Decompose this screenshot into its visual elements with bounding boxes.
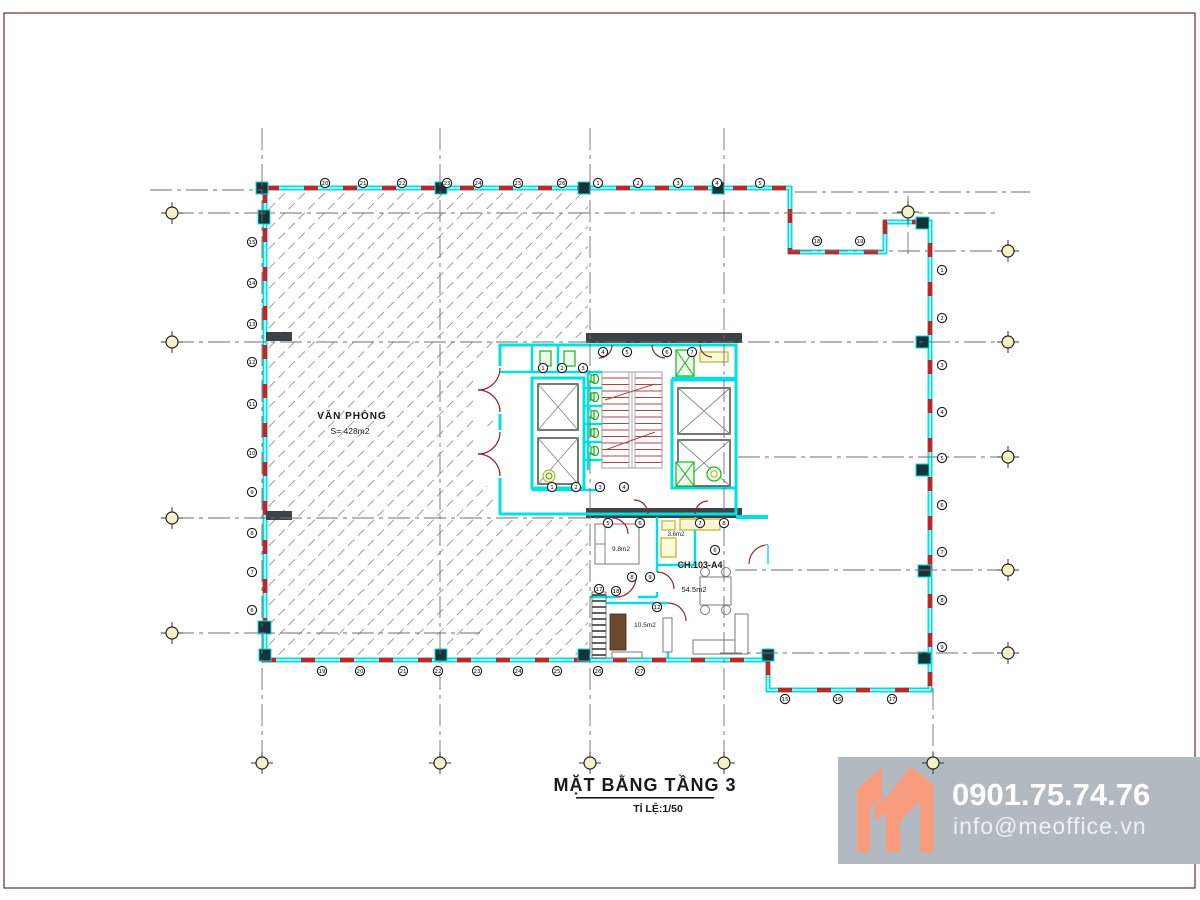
staircase <box>602 372 662 468</box>
svg-text:20: 20 <box>357 669 364 675</box>
svg-text:3: 3 <box>581 366 585 372</box>
washbasin <box>662 521 675 530</box>
svg-text:7: 7 <box>940 550 944 556</box>
opening-marker: 15 <box>247 237 256 246</box>
drawing-title: MẶT BẰNG TẦNG 3 <box>554 774 737 795</box>
opening-marker: 10 <box>247 448 256 457</box>
bedroom1-area-label: 9.8m2 <box>612 546 630 553</box>
floor-plan-drawing: 0901.75.74.76 info@meoffice.vn <box>0 0 1200 900</box>
badge-phone: 0901.75.74.76 <box>952 777 1150 812</box>
opening-marker: 6 <box>937 500 946 509</box>
opening-marker: 3 <box>578 363 587 372</box>
opening-marker: 3 <box>937 360 946 369</box>
svg-text:19: 19 <box>857 239 864 245</box>
svg-text:2: 2 <box>940 316 944 322</box>
svg-text:4: 4 <box>601 350 605 356</box>
svg-text:4: 4 <box>715 181 719 187</box>
opening-marker: 23 <box>472 666 481 675</box>
opening-marker: 7 <box>687 347 696 356</box>
opening-marker: 6 <box>635 518 644 527</box>
opening-marker: 6 <box>710 545 719 554</box>
opening-marker: 1 <box>937 265 946 274</box>
svg-text:1: 1 <box>550 485 554 491</box>
svg-text:18: 18 <box>814 239 821 245</box>
opening-marker: 25 <box>552 666 561 675</box>
sofa <box>693 640 735 654</box>
drawing-scale: TỈ LỆ:1/50 <box>633 802 683 815</box>
sink-fixture <box>564 351 575 366</box>
svg-text:12: 12 <box>654 605 661 611</box>
svg-text:10: 10 <box>249 451 256 457</box>
opening-marker: 7 <box>247 567 256 576</box>
opening-marker: 24 <box>473 178 482 187</box>
svg-text:21: 21 <box>400 669 407 675</box>
svg-text:2: 2 <box>574 485 578 491</box>
opening-marker: 11 <box>247 399 256 408</box>
opening-marker: 4 <box>712 178 721 187</box>
core-top-wall <box>586 333 742 343</box>
svg-text:25: 25 <box>515 181 522 187</box>
opening-marker: 1 <box>538 363 547 372</box>
opening-marker: 5 <box>937 453 946 462</box>
svg-text:2: 2 <box>560 366 564 372</box>
opening-marker: 4 <box>937 407 946 416</box>
svg-text:14: 14 <box>249 281 256 287</box>
title-underline <box>576 797 714 799</box>
svg-text:3: 3 <box>676 181 680 187</box>
opening-marker: 5 <box>622 347 631 356</box>
apartment-area-label: 54.5m2 <box>681 585 706 594</box>
svg-text:20: 20 <box>322 181 329 187</box>
svg-text:15: 15 <box>249 240 256 246</box>
opening-marker: 3 <box>595 482 604 491</box>
opening-marker: 23 <box>442 178 451 187</box>
opening-marker: 19 <box>317 666 326 675</box>
tv-cabinet <box>663 618 672 652</box>
opening-marker: 2 <box>557 363 566 372</box>
svg-text:23: 23 <box>444 181 451 187</box>
svg-text:13: 13 <box>249 322 256 328</box>
svg-text:18: 18 <box>613 589 620 595</box>
opening-marker: 8 <box>627 572 636 581</box>
opening-marker: 13 <box>247 319 256 328</box>
office-area-label: S= 428m2 <box>331 426 370 436</box>
opening-marker: 22 <box>397 178 406 187</box>
svg-text:11: 11 <box>249 402 256 408</box>
svg-text:12: 12 <box>249 360 256 366</box>
office-name-label: VĂN PHÒNG <box>317 409 387 422</box>
svg-text:6: 6 <box>638 521 642 527</box>
svg-text:21: 21 <box>360 181 367 187</box>
opening-marker: 26 <box>557 178 566 187</box>
opening-marker: 16 <box>833 694 842 703</box>
svg-text:19: 19 <box>319 669 326 675</box>
opening-marker: 5 <box>603 518 612 527</box>
opening-marker: 24 <box>513 666 522 675</box>
opening-marker: 15 <box>780 694 789 703</box>
opening-marker: 2 <box>571 482 580 491</box>
floor-plan-page: 0901.75.74.76 info@meoffice.vn <box>0 0 1200 900</box>
svg-text:1: 1 <box>940 268 944 274</box>
branding-badge: 0901.75.74.76 info@meoffice.vn <box>838 757 1200 864</box>
opening-marker: 9 <box>247 487 256 496</box>
opening-marker: 20 <box>320 178 329 187</box>
svg-text:5: 5 <box>758 181 762 187</box>
cabinet <box>610 614 626 650</box>
svg-text:8: 8 <box>250 531 254 537</box>
fridge <box>661 538 676 557</box>
apartment-code-label: CH.103-A4 <box>677 560 722 570</box>
svg-text:6: 6 <box>250 608 254 614</box>
opening-marker: 21 <box>358 178 367 187</box>
bathroom-area-label: 3.6m2 <box>668 532 685 538</box>
opening-marker: 14 <box>247 278 256 287</box>
svg-text:6: 6 <box>665 350 669 356</box>
svg-text:8: 8 <box>630 575 634 581</box>
opening-marker: 9 <box>645 572 654 581</box>
opening-marker: 2 <box>937 313 946 322</box>
opening-marker: 9 <box>937 642 946 651</box>
svg-text:5: 5 <box>606 521 610 527</box>
opening-marker: 3 <box>673 178 682 187</box>
opening-marker: 8 <box>247 528 256 537</box>
opening-marker: 4 <box>598 347 607 356</box>
opening-marker: 5 <box>755 178 764 187</box>
svg-text:9: 9 <box>940 645 944 651</box>
svg-text:3: 3 <box>940 363 944 369</box>
opening-marker: 21 <box>398 666 407 675</box>
opening-marker: 2 <box>633 178 642 187</box>
opening-marker: 12 <box>247 357 256 366</box>
svg-text:6: 6 <box>940 503 944 509</box>
bedroom2-area-label: 10.5m2 <box>634 622 656 629</box>
opening-marker: 1 <box>593 178 602 187</box>
opening-marker: 17 <box>594 584 603 593</box>
svg-text:5: 5 <box>940 456 944 462</box>
opening-marker: 8 <box>719 518 728 527</box>
svg-text:6: 6 <box>713 548 717 554</box>
svg-text:23: 23 <box>474 669 481 675</box>
svg-text:4: 4 <box>622 485 626 491</box>
svg-text:24: 24 <box>475 181 482 187</box>
svg-text:8: 8 <box>722 521 726 527</box>
opening-marker: 1 <box>547 482 556 491</box>
svg-text:7: 7 <box>690 350 694 356</box>
opening-marker: 17 <box>887 694 896 703</box>
opening-marker: 12 <box>652 602 661 611</box>
opening-marker: 25 <box>513 178 522 187</box>
svg-text:1: 1 <box>541 366 545 372</box>
svg-text:1: 1 <box>596 181 600 187</box>
svg-text:26: 26 <box>559 181 566 187</box>
opening-marker: 27 <box>635 666 644 675</box>
opening-marker: 26 <box>593 666 602 675</box>
svg-text:26: 26 <box>595 669 602 675</box>
svg-text:2: 2 <box>636 181 640 187</box>
svg-text:7: 7 <box>250 570 254 576</box>
svg-text:25: 25 <box>554 669 561 675</box>
opening-marker: 8 <box>937 595 946 604</box>
svg-text:22: 22 <box>435 669 442 675</box>
svg-text:3: 3 <box>598 485 602 491</box>
svg-text:9: 9 <box>648 575 652 581</box>
svg-text:24: 24 <box>515 669 522 675</box>
opening-marker: 7 <box>695 518 704 527</box>
svg-text:5: 5 <box>625 350 629 356</box>
opening-marker: 6 <box>247 605 256 614</box>
wardrobe <box>592 592 606 658</box>
svg-text:7: 7 <box>698 521 702 527</box>
svg-text:22: 22 <box>399 181 406 187</box>
opening-marker: 18 <box>611 586 620 595</box>
svg-text:17: 17 <box>596 587 603 593</box>
opening-marker: 18 <box>812 236 821 245</box>
opening-marker: 22 <box>433 666 442 675</box>
svg-text:27: 27 <box>637 669 644 675</box>
svg-text:9: 9 <box>250 490 254 496</box>
opening-marker: 7 <box>937 547 946 556</box>
svg-text:17: 17 <box>889 697 896 703</box>
svg-text:15: 15 <box>782 697 789 703</box>
sofa-side <box>735 614 748 654</box>
opening-marker: 20 <box>355 666 364 675</box>
opening-marker: 6 <box>662 347 671 356</box>
svg-text:8: 8 <box>940 598 944 604</box>
svg-text:4: 4 <box>940 410 944 416</box>
opening-marker: 4 <box>619 482 628 491</box>
badge-email: info@meoffice.vn <box>953 813 1147 839</box>
opening-marker: 19 <box>855 236 864 245</box>
fixture <box>543 470 555 482</box>
svg-text:16: 16 <box>835 697 842 703</box>
